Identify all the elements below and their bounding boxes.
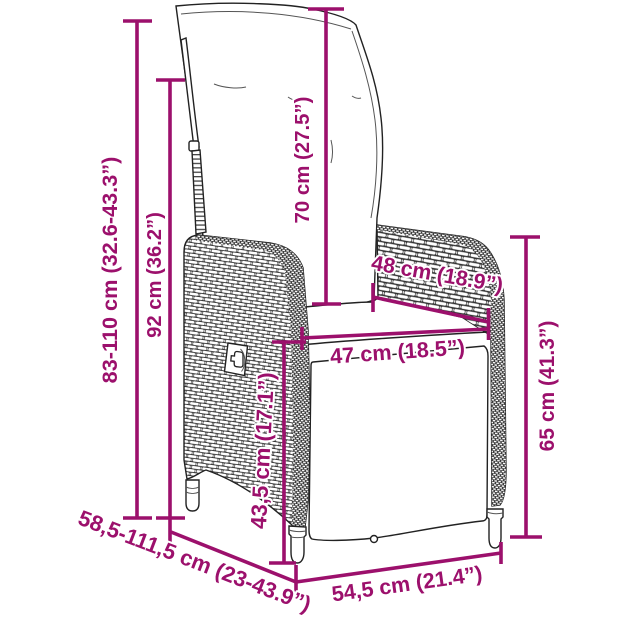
svg-text:83-110 cm (32.6-43.3”): 83-110 cm (32.6-43.3”) <box>97 157 122 384</box>
svg-text:92 cm (36.2”): 92 cm (36.2”) <box>144 212 166 338</box>
svg-text:65 cm (41.3”): 65 cm (41.3”) <box>536 321 559 452</box>
svg-text:70 cm (27.5”): 70 cm (27.5”) <box>292 97 314 224</box>
